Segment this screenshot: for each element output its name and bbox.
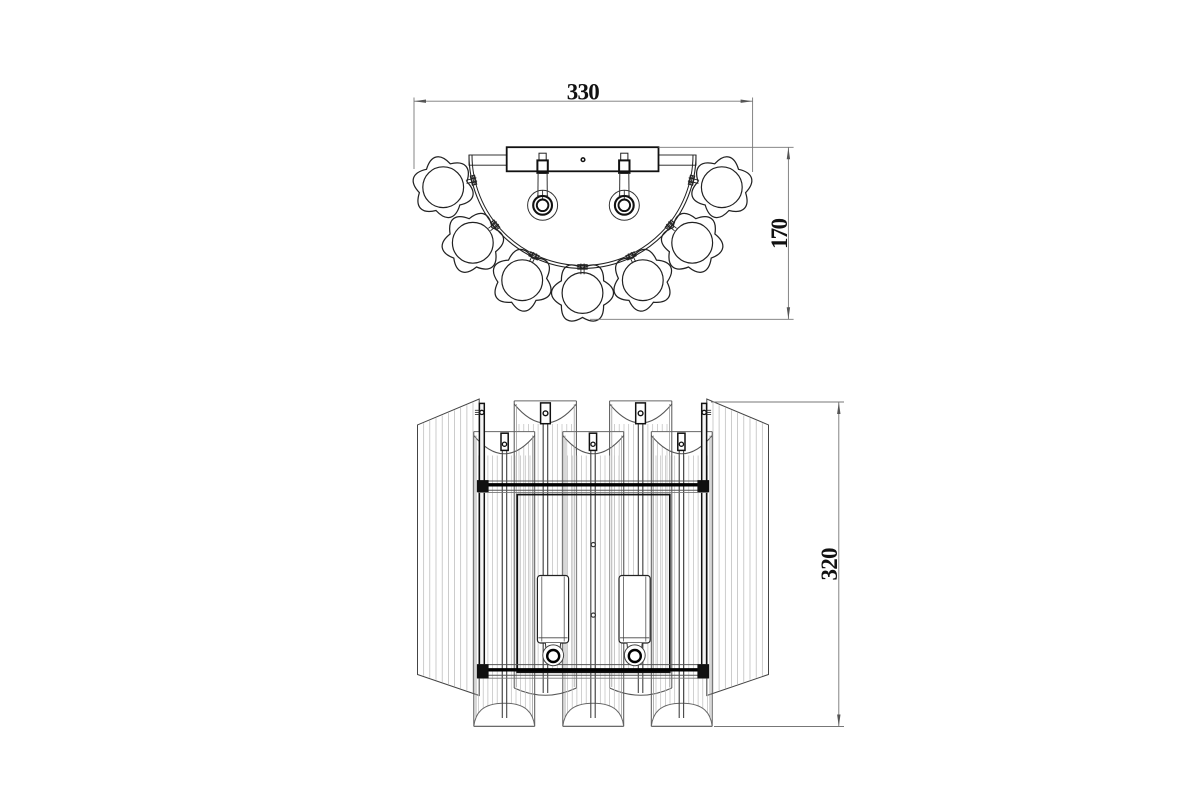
svg-text:320: 320 bbox=[817, 548, 842, 581]
svg-text:330: 330 bbox=[567, 80, 600, 105]
svg-text:170: 170 bbox=[767, 218, 792, 249]
